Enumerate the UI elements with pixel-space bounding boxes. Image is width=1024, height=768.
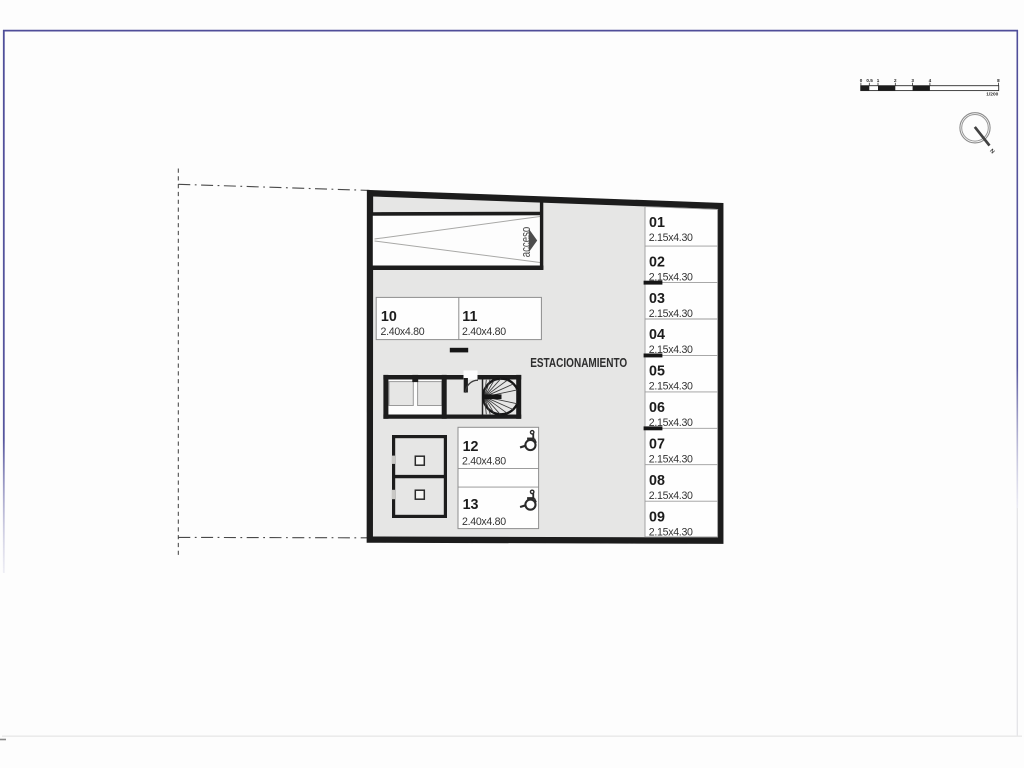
svg-text:ESTACIONAMIENTO: ESTACIONAMIENTO: [530, 355, 627, 370]
svg-text:03: 03: [649, 291, 665, 307]
svg-text:12: 12: [463, 439, 479, 455]
svg-text:2.15x4.30: 2.15x4.30: [649, 454, 693, 466]
svg-text:13: 13: [463, 497, 479, 513]
svg-text:4: 4: [929, 78, 932, 83]
svg-text:1: 1: [877, 78, 880, 83]
svg-text:2.15x4.30: 2.15x4.30: [649, 232, 693, 244]
svg-text:1/200: 1/200: [986, 91, 998, 97]
svg-text:2: 2: [894, 78, 897, 83]
svg-text:2.15x4.30: 2.15x4.30: [649, 490, 693, 502]
svg-text:8: 8: [997, 78, 1000, 83]
svg-text:0.5: 0.5: [866, 78, 873, 83]
svg-text:2.15x4.30: 2.15x4.30: [649, 381, 693, 393]
svg-text:07: 07: [649, 437, 665, 453]
svg-text:2.15x4.30: 2.15x4.30: [649, 417, 693, 429]
svg-text:2.40x4.80: 2.40x4.80: [381, 326, 425, 338]
svg-text:05: 05: [649, 364, 665, 380]
svg-text:08: 08: [649, 473, 665, 489]
svg-text:2.15x4.30: 2.15x4.30: [649, 308, 693, 320]
svg-text:01: 01: [649, 215, 665, 231]
svg-text:2.40x4.80: 2.40x4.80: [462, 326, 506, 338]
svg-text:2.15x4.30: 2.15x4.30: [649, 526, 693, 538]
svg-text:0: 0: [860, 78, 863, 83]
svg-text:2.40x4.80: 2.40x4.80: [462, 455, 506, 467]
svg-text:09: 09: [649, 509, 665, 525]
svg-text:2.15x4.30: 2.15x4.30: [649, 271, 693, 283]
svg-text:02: 02: [649, 254, 665, 270]
svg-text:11: 11: [462, 309, 477, 325]
svg-text:2.40x4.80: 2.40x4.80: [462, 516, 506, 528]
svg-text:3: 3: [911, 78, 914, 83]
svg-text:04: 04: [649, 327, 665, 343]
svg-text:10: 10: [381, 309, 397, 325]
svg-text:06: 06: [649, 400, 665, 416]
svg-text:2.15x4.30: 2.15x4.30: [649, 344, 693, 356]
